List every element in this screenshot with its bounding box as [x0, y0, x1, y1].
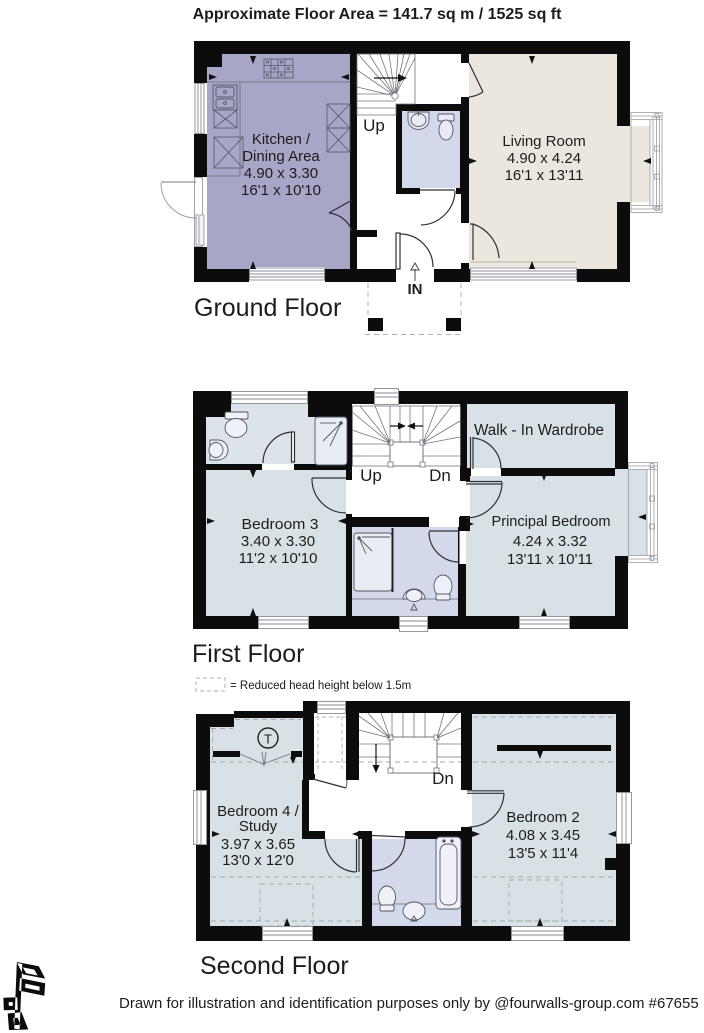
svg-text:T: T: [264, 732, 272, 747]
svg-text:4.08 x 3.45: 4.08 x 3.45: [506, 827, 580, 844]
svg-text:Ground Floor: Ground Floor: [194, 294, 341, 322]
svg-text:13'0 x 12'0: 13'0 x 12'0: [222, 852, 294, 869]
svg-text:First Floor: First Floor: [192, 640, 305, 668]
svg-text:16'1 x 10'10: 16'1 x 10'10: [241, 182, 321, 199]
svg-text:Principal Bedroom: Principal Bedroom: [492, 513, 611, 530]
svg-text:Bedroom 2: Bedroom 2: [506, 809, 579, 826]
svg-text:Second Floor: Second Floor: [200, 952, 349, 980]
svg-text:Dining Area: Dining Area: [242, 148, 320, 165]
svg-text:16'1 x 13'11: 16'1 x 13'11: [505, 167, 584, 184]
svg-text:Bedroom 3: Bedroom 3: [242, 516, 319, 533]
svg-text:4.90 x 4.24: 4.90 x 4.24: [507, 150, 581, 167]
svg-text:Dn: Dn: [432, 769, 454, 788]
svg-text:= Reduced head height below 1.: = Reduced head height below 1.5m: [230, 680, 411, 692]
svg-text:13'5 x 11'4: 13'5 x 11'4: [508, 845, 579, 862]
svg-text:4.90 x 3.30: 4.90 x 3.30: [244, 165, 318, 182]
svg-text:4.24 x 3.32: 4.24 x 3.32: [513, 533, 587, 550]
svg-text:Living Room: Living Room: [502, 133, 585, 150]
svg-text:Drawn for illustration and ide: Drawn for illustration and identificatio…: [119, 995, 699, 1012]
svg-text:3.40 x 3.30: 3.40 x 3.30: [241, 533, 315, 550]
svg-text:Walk - In Wardrobe: Walk - In Wardrobe: [474, 422, 604, 439]
svg-text:IN: IN: [408, 281, 423, 298]
svg-text:Study: Study: [239, 818, 278, 835]
svg-text:Kitchen /: Kitchen /: [252, 131, 311, 148]
svg-text:3.97 x 3.65: 3.97 x 3.65: [221, 836, 295, 853]
svg-text:Approximate Floor Area = 141.7: Approximate Floor Area = 141.7 sq m / 15…: [193, 6, 563, 23]
svg-text:13'11 x 10'11: 13'11 x 10'11: [507, 551, 593, 568]
svg-text:Up: Up: [360, 466, 382, 485]
svg-text:11'2 x 10'10: 11'2 x 10'10: [239, 550, 318, 567]
svg-text:Up: Up: [363, 116, 385, 135]
svg-text:Dn: Dn: [429, 466, 451, 485]
